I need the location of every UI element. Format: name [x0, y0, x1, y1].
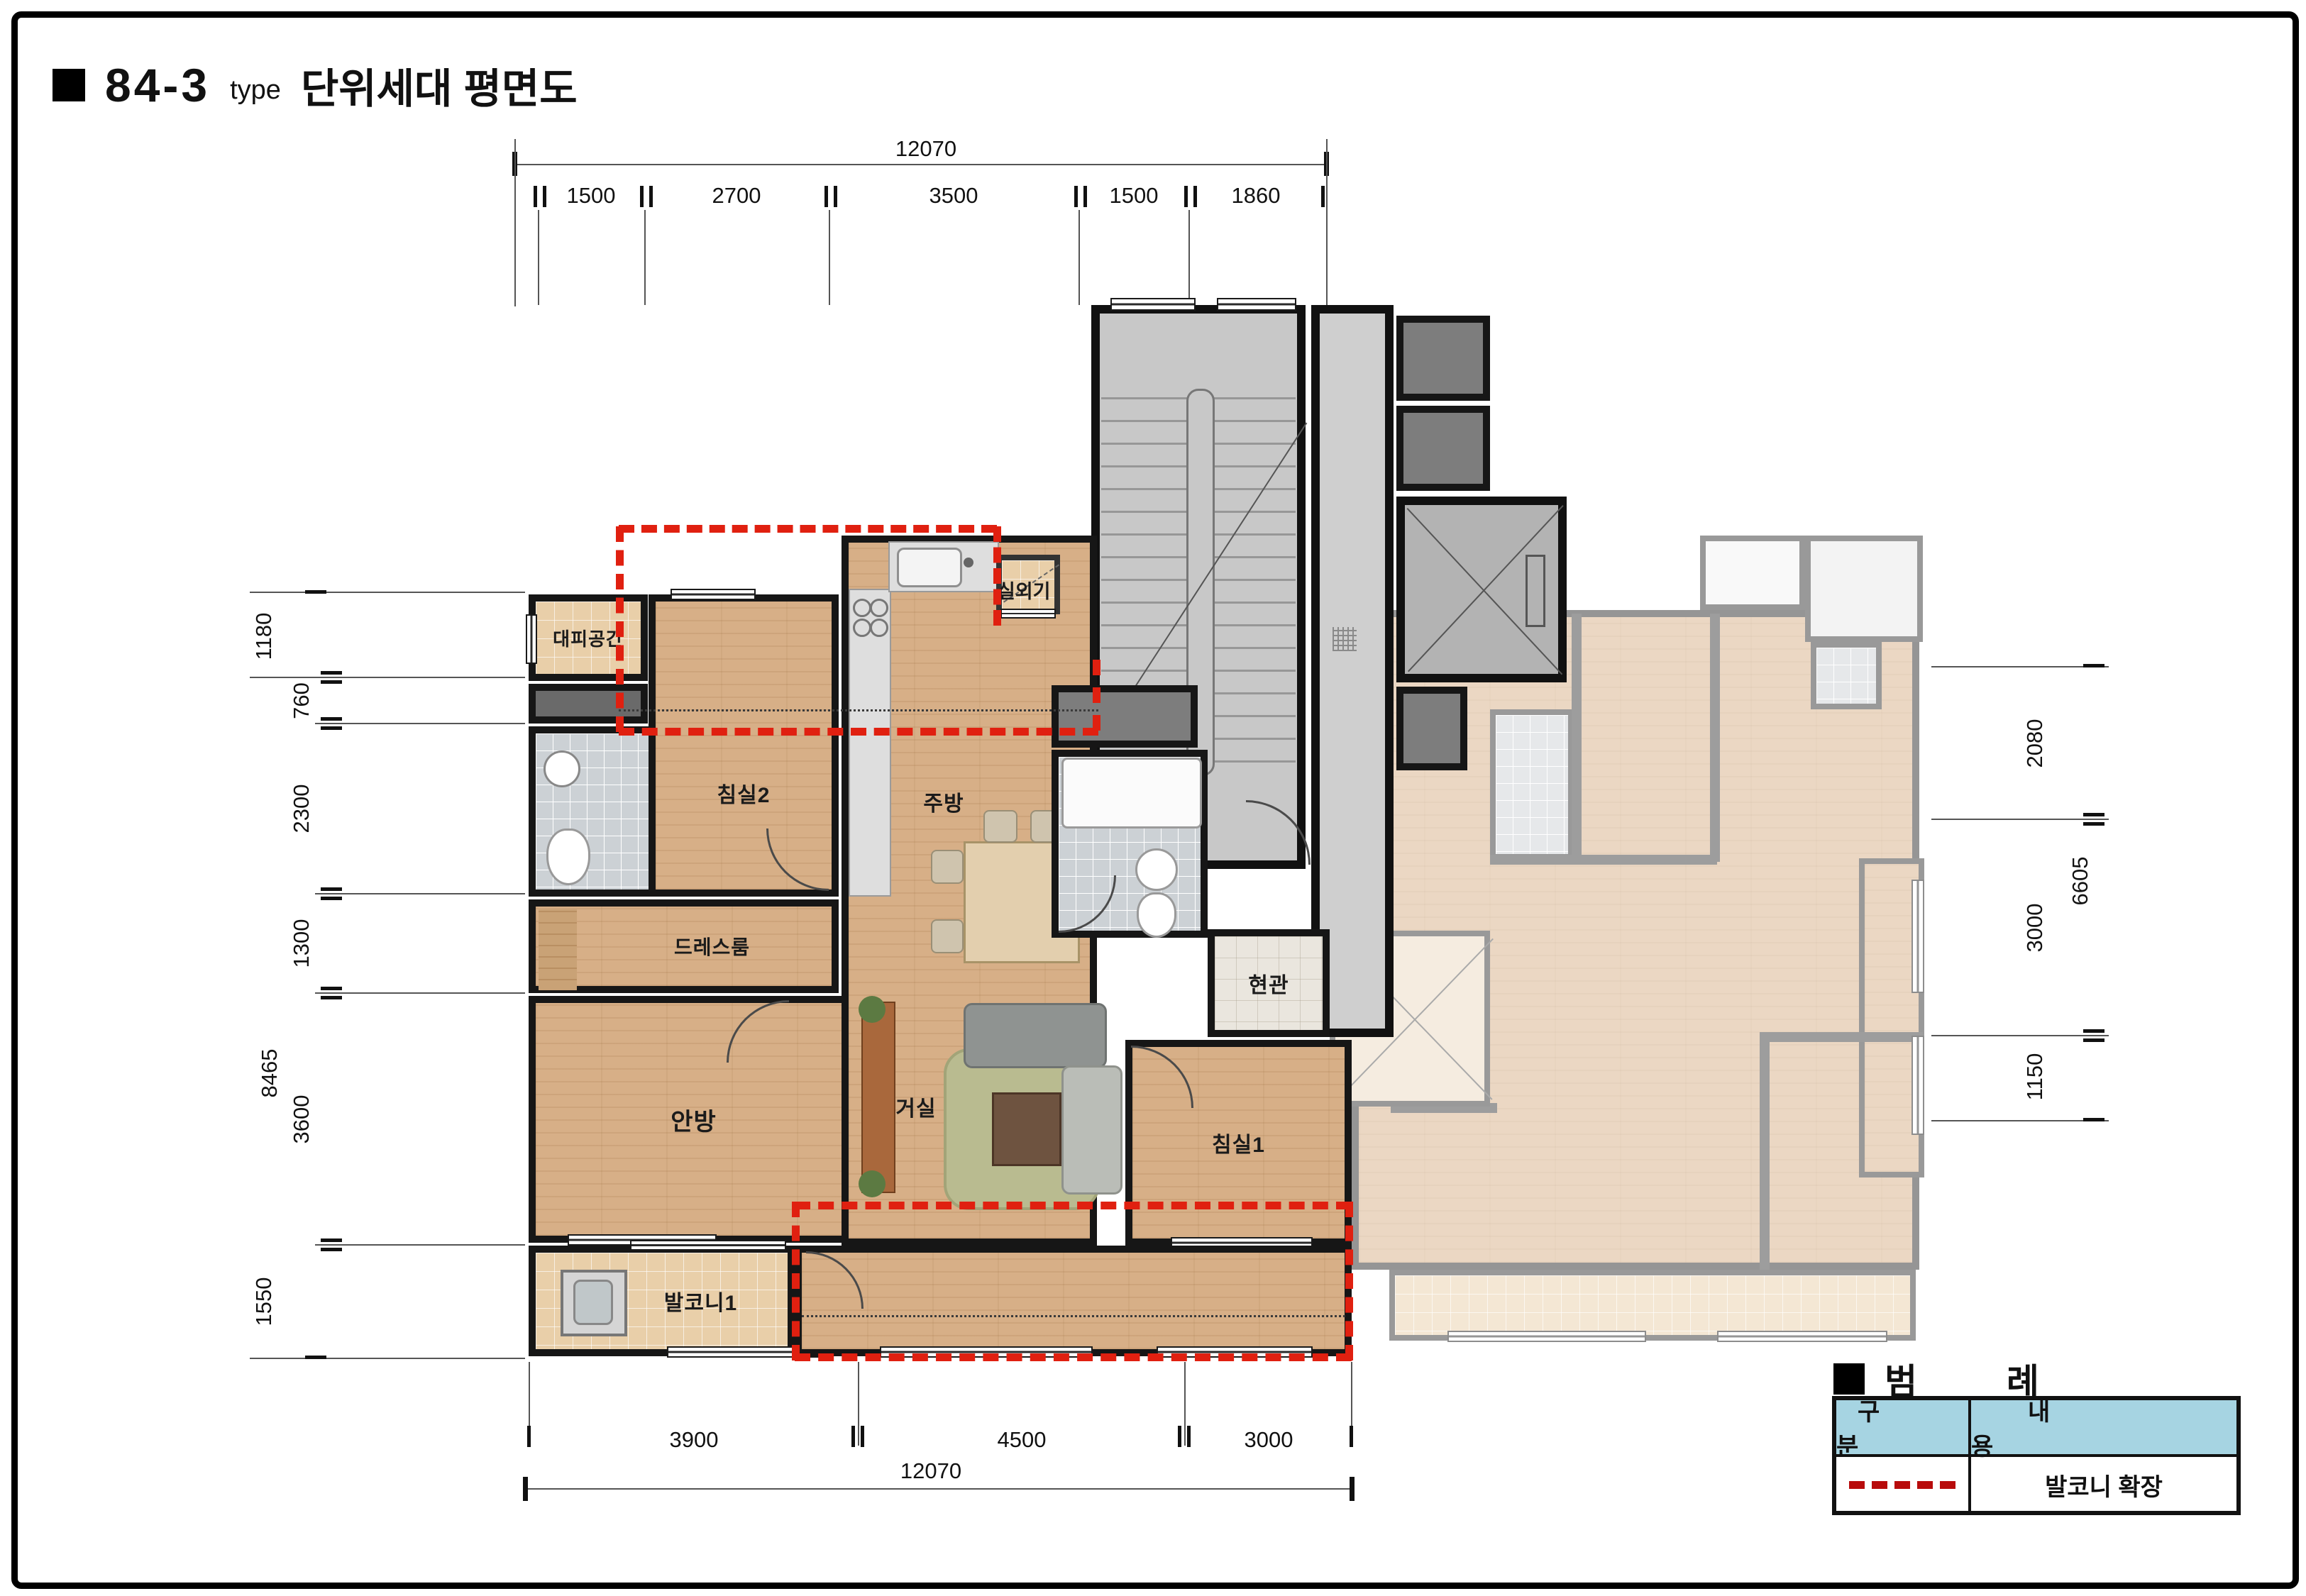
dim-left-seg: 760 — [289, 662, 314, 740]
dim-tick — [2083, 664, 2104, 667]
shaft-closet — [1396, 687, 1467, 770]
neighbor-wall — [1490, 855, 1717, 865]
dim-ext-line — [538, 210, 539, 305]
dim-tick — [321, 987, 342, 990]
dim-top-overall: 12070 — [855, 136, 997, 162]
title-code: 84-3 — [105, 58, 210, 112]
dim-tick — [305, 1356, 326, 1359]
page-title: 84-3 type 단위세대 평면도 — [53, 55, 578, 115]
toilet-icon — [1137, 892, 1176, 938]
faucet-icon — [964, 558, 973, 567]
neighbor-window-bay — [1700, 536, 1805, 610]
room-entrance: 현관 — [1208, 929, 1330, 1037]
dim-right-seg: 1150 — [2022, 1038, 2048, 1116]
room-label: 대피공간 — [553, 625, 624, 651]
balcony-expansion-dash — [993, 526, 1001, 626]
dim-ext-line — [315, 723, 525, 724]
room-dressroom: 드레스룸 — [529, 899, 839, 993]
room-label: 주방 — [923, 786, 964, 817]
dim-ext-line — [1078, 210, 1080, 305]
legend-header-content-text: 내 용 — [1971, 1392, 2236, 1462]
sofa — [1061, 1065, 1122, 1195]
window — [1911, 880, 1924, 993]
legend-content-cell: 발코니 확장 — [1971, 1457, 2236, 1512]
balcony-expansion-dash — [795, 1353, 1352, 1361]
dim-tick — [1178, 1426, 1181, 1447]
dim-tick — [640, 186, 644, 207]
dim-ext-line — [1188, 210, 1190, 305]
window — [1000, 609, 1056, 619]
dim-tick — [2083, 1029, 2104, 1033]
dim-tick — [523, 1477, 528, 1501]
dim-ext-line — [858, 1362, 859, 1446]
dim-tick — [321, 671, 342, 675]
legend-table: 구 분 내 용 발코니 확장 — [1832, 1396, 2241, 1515]
balcony-expansion-dash — [619, 525, 997, 533]
dim-tick — [2083, 1118, 2104, 1121]
duct — [529, 684, 648, 724]
dim-left-overall: 8465 — [257, 1034, 282, 1112]
window — [671, 589, 756, 600]
dim-ext-line — [315, 893, 525, 894]
balcony-expansion-dash — [1093, 660, 1100, 731]
dim-top-seg: 2700 — [701, 183, 772, 209]
dim-ext-line — [315, 992, 525, 994]
dim-tick — [1350, 1426, 1353, 1447]
toilet-icon — [546, 829, 590, 885]
neighbor-wall — [1760, 1032, 1770, 1270]
dim-bottom-overall: 12070 — [860, 1458, 1002, 1484]
dim-ext-line — [250, 592, 525, 593]
legend-header-category: 구 분 — [1836, 1400, 1971, 1454]
chair-icon — [931, 850, 964, 884]
neighbor-wall — [1760, 1032, 1923, 1042]
window — [526, 614, 537, 664]
title-bullet-icon — [53, 69, 85, 101]
neighbor-bathroom — [1811, 642, 1882, 709]
sink-icon — [1135, 848, 1178, 891]
window — [630, 1240, 786, 1251]
dim-right-seg: 3000 — [2022, 889, 2048, 967]
window — [1447, 1331, 1646, 1342]
dim-tick — [824, 186, 828, 207]
balcony-expansion-dash — [1345, 1202, 1353, 1361]
dim-ext-line — [514, 139, 516, 306]
dim-ext-line — [1931, 1035, 2109, 1036]
room-label: 거실 — [895, 1091, 936, 1122]
legend-content-text: 발코니 확장 — [2045, 1468, 2163, 1502]
dim-tick — [2083, 813, 2104, 816]
room-label: 실외기 — [998, 581, 1051, 602]
title-type-label: type — [230, 75, 281, 106]
dim-tick — [305, 590, 326, 594]
bathtub-icon — [1061, 758, 1202, 829]
room-label: 드레스룸 — [674, 932, 750, 960]
closet-icon — [539, 909, 577, 990]
plant-icon — [859, 1170, 886, 1197]
dotted-line — [619, 709, 1098, 711]
shaft-closet — [1396, 316, 1490, 401]
dim-tick — [321, 887, 342, 891]
dim-ext-line — [1931, 1120, 2109, 1121]
dim-left-seg: 1180 — [251, 597, 277, 675]
washer-drum-icon — [573, 1280, 613, 1325]
dim-tick — [321, 1238, 342, 1242]
dim-right-seg: 2080 — [2022, 704, 2048, 782]
dim-ext-line — [1931, 666, 2109, 667]
dim-tick — [527, 1426, 531, 1447]
room-label-wrap: 실외기 — [998, 576, 1083, 604]
dim-left-seg: 1300 — [289, 904, 314, 982]
room-label: 침실2 — [717, 777, 771, 809]
sofa — [964, 1003, 1107, 1068]
legend-bullet-icon — [1833, 1363, 1865, 1395]
dotted-line — [802, 1315, 1345, 1317]
balcony-expansion-dash — [619, 728, 1098, 736]
washer-icon — [561, 1270, 627, 1336]
dim-ext-line — [829, 210, 830, 305]
elevator-counterweight — [1526, 555, 1545, 627]
legend-body-row: 발코니 확장 — [1836, 1457, 2236, 1512]
expanded-balcony-strip — [795, 1246, 1352, 1356]
burner-icon — [870, 619, 888, 637]
dim-ext-line — [644, 210, 646, 305]
dim-tick — [1184, 186, 1188, 207]
shaft-closet — [1396, 406, 1490, 491]
chair-icon — [983, 810, 1017, 843]
sink-icon — [544, 750, 580, 787]
dim-top-seg: 3500 — [918, 183, 989, 209]
coffee-table — [992, 1092, 1061, 1166]
dim-top-seg: 1860 — [1220, 183, 1291, 209]
room-label: 침실1 — [1212, 1127, 1265, 1158]
room-label: 발코니1 — [664, 1285, 738, 1317]
neighbor-wall — [1710, 614, 1720, 862]
neighbor-window-bay — [1805, 536, 1923, 642]
dim-tick — [851, 1426, 855, 1447]
chair-icon — [931, 919, 964, 953]
balcony-expansion-dash — [795, 1202, 1352, 1209]
legend-sample-cell — [1836, 1457, 1971, 1512]
dim-bottom-seg: 4500 — [986, 1427, 1057, 1453]
window — [1110, 298, 1196, 311]
dim-bottom-seg: 3000 — [1233, 1427, 1304, 1453]
dim-tick — [321, 717, 342, 721]
balcony-expansion-dash-sample — [1849, 1481, 1955, 1489]
room-label-wrap: 거실 — [877, 1091, 955, 1122]
dim-ext-line — [1184, 1362, 1186, 1446]
plant-icon — [859, 996, 886, 1023]
neighbor-wall — [1572, 614, 1582, 862]
shaft-closet — [1052, 685, 1198, 748]
window — [1911, 1036, 1924, 1135]
room-label: 안방 — [671, 1102, 717, 1137]
dim-tick — [1350, 1477, 1355, 1501]
legend-header-category-text: 구 분 — [1836, 1392, 1968, 1462]
burner-icon — [853, 599, 871, 617]
dim-top-seg: 1500 — [1098, 183, 1169, 209]
room-refuge: 대피공간 — [529, 594, 648, 681]
dim-ext-line — [315, 1244, 525, 1246]
legend-header-row: 구 분 내 용 — [1836, 1400, 2236, 1457]
balcony-expansion-dash — [616, 526, 624, 732]
sink-icon — [897, 548, 962, 587]
dim-tick — [1321, 186, 1325, 207]
corridor — [1311, 305, 1394, 1037]
dim-top-seg: 1500 — [556, 183, 627, 209]
dim-line — [515, 164, 1328, 165]
dim-left-seg: 2300 — [289, 770, 314, 848]
dim-line — [525, 1488, 1353, 1490]
dim-left-seg: 1550 — [251, 1263, 277, 1341]
legend-header-content: 내 용 — [1971, 1400, 2236, 1454]
balcony-expansion-dash — [792, 1202, 800, 1361]
neighbor-balcony — [1389, 1270, 1916, 1341]
window — [1717, 1331, 1887, 1342]
title-name: 단위세대 평면도 — [301, 55, 578, 115]
dim-bottom-seg: 3900 — [658, 1427, 729, 1453]
burner-icon — [870, 599, 888, 617]
burner-icon — [853, 619, 871, 637]
dim-left-seg: 3600 — [289, 1080, 314, 1158]
dim-ext-line — [250, 677, 525, 678]
dim-tick — [534, 186, 537, 207]
dim-tick — [1074, 186, 1078, 207]
neighbor-bathroom — [1490, 709, 1574, 860]
room-label: 현관 — [1248, 968, 1289, 999]
dim-ext-line — [1326, 139, 1328, 306]
dim-right-overall: 6605 — [2068, 842, 2093, 920]
window — [1217, 298, 1296, 311]
dim-ext-line — [1931, 819, 2109, 820]
floor-drain-icon — [1333, 627, 1357, 651]
dim-ext-line — [250, 1358, 525, 1359]
